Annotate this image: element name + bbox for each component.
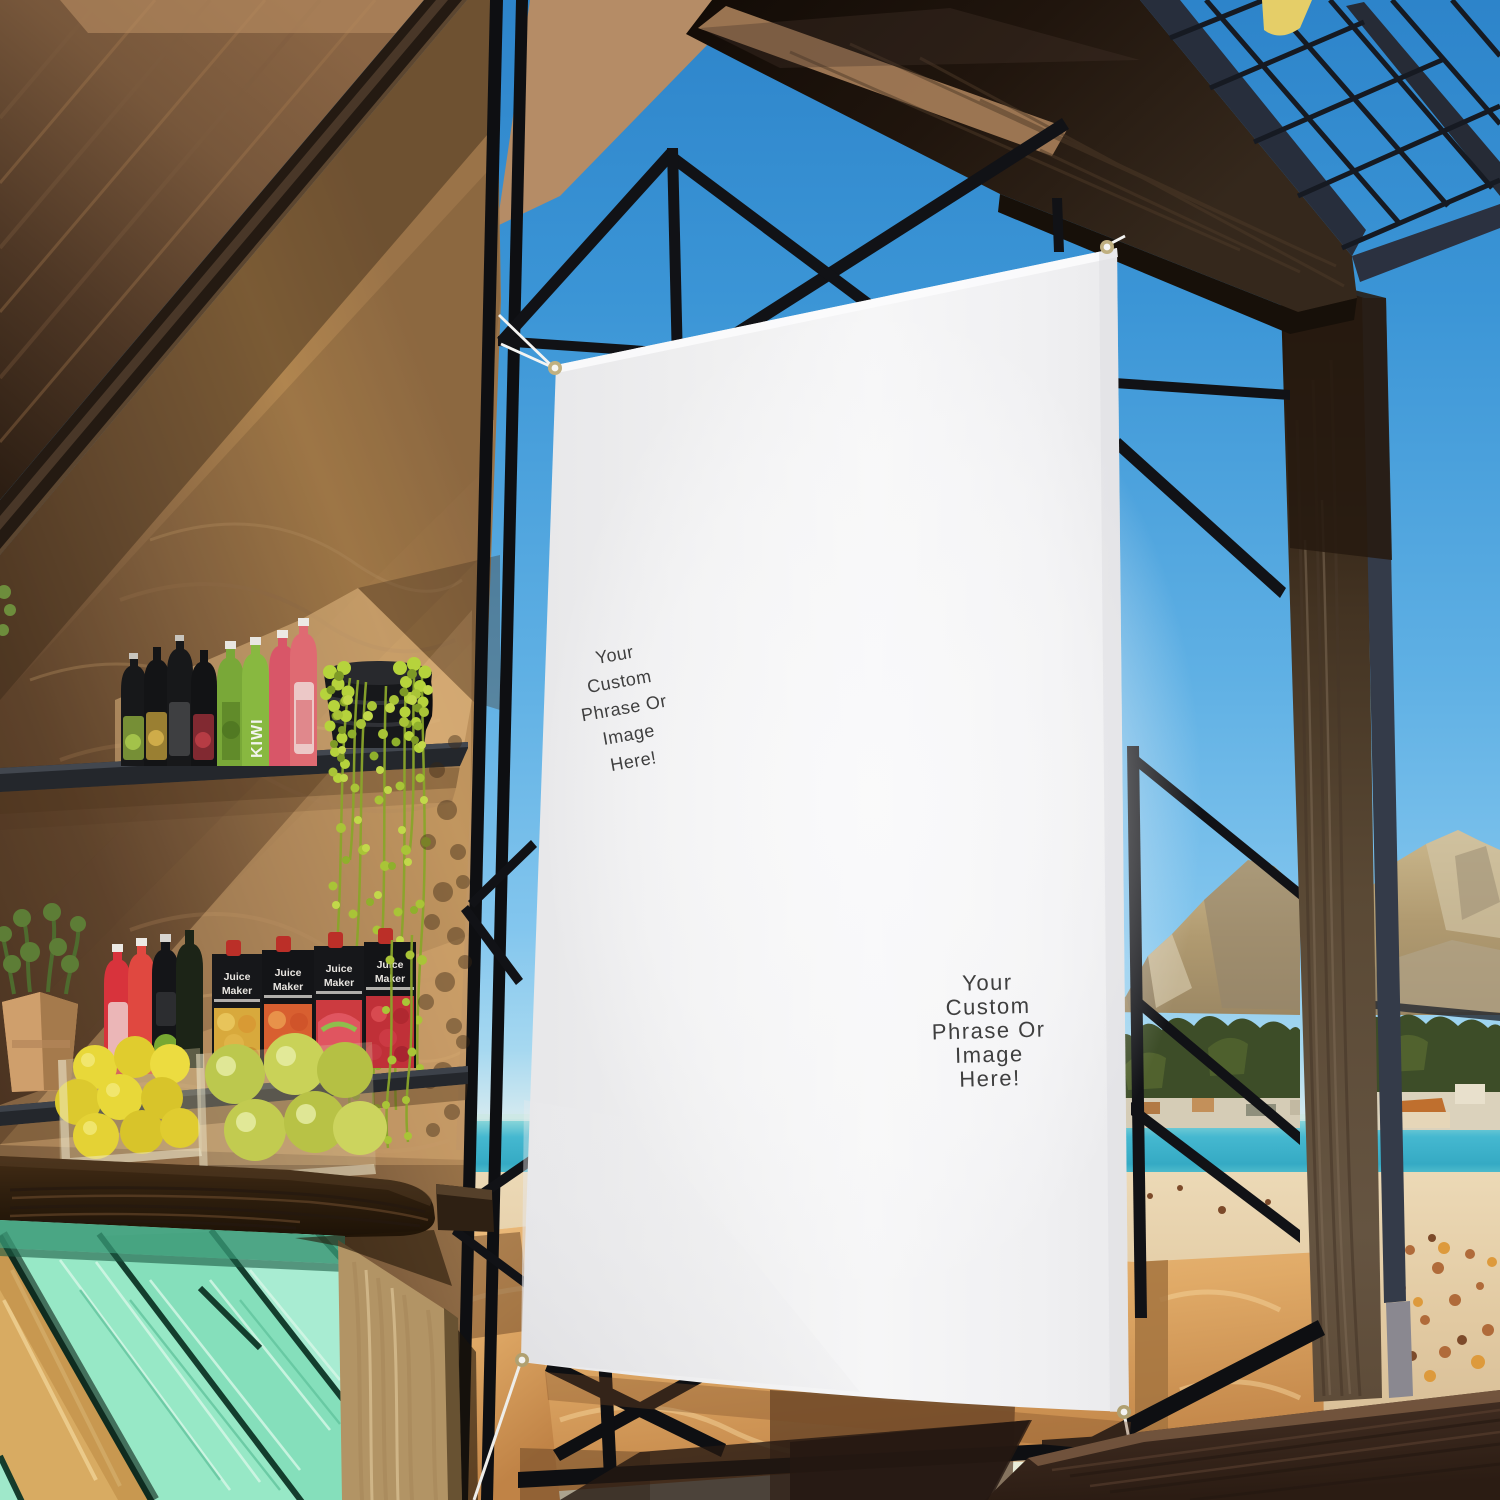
svg-text:Maker: Maker — [375, 973, 405, 985]
svg-text:Your: Your — [962, 969, 1013, 995]
svg-text:Juice: Juice — [326, 963, 353, 975]
svg-text:Juice: Juice — [224, 971, 251, 983]
svg-text:Maker: Maker — [324, 977, 354, 989]
svg-text:Phrase Or: Phrase Or — [932, 1017, 1046, 1045]
svg-text:Custom: Custom — [945, 993, 1030, 1020]
svg-text:KIWI: KIWI — [249, 718, 266, 758]
svg-text:Maker: Maker — [273, 981, 303, 993]
svg-text:Juice: Juice — [275, 967, 302, 979]
svg-text:Image: Image — [955, 1041, 1024, 1068]
svg-text:Here!: Here! — [959, 1065, 1021, 1092]
svg-text:Maker: Maker — [222, 985, 252, 997]
